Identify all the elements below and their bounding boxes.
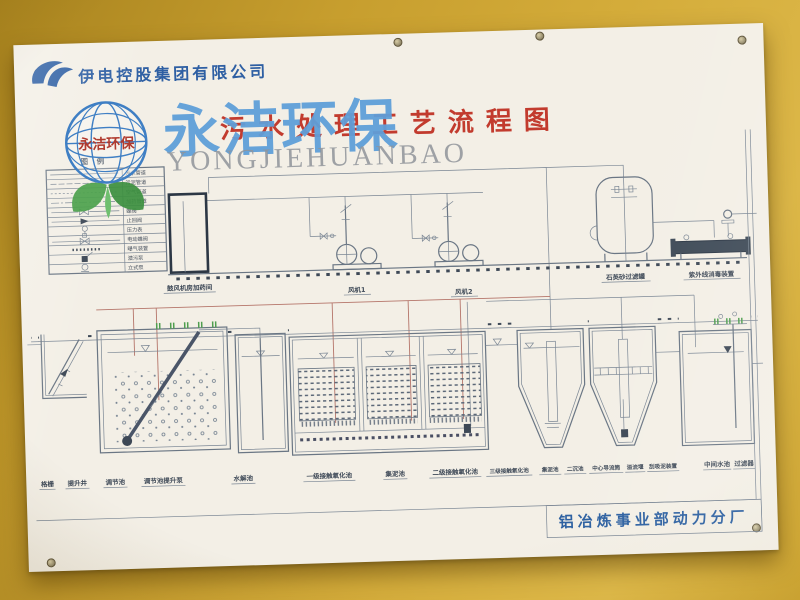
filter-tank-label: 石英砂过滤罐 xyxy=(605,272,646,282)
tank-label: 水解池 xyxy=(233,473,253,483)
tank-label: 二级接触氧化池 xyxy=(432,467,478,477)
screw-top-mid-1 xyxy=(393,38,402,47)
oxidation-tank-pump xyxy=(464,424,471,433)
legend-label: 蝶阀 xyxy=(126,207,137,215)
tank-label: 刮吸泥装置 xyxy=(649,462,678,471)
screw-top-mid-2 xyxy=(535,31,544,40)
legend: 图 例 污水管道 污泥管道 空气管道 加药管道 蝶阀 止回阀 xyxy=(46,154,167,274)
tank-label: 溢流堰 xyxy=(627,463,644,472)
legend-symbol-check-valve xyxy=(52,217,120,225)
pipe-to-clarifier xyxy=(485,344,517,345)
clarifier-1 xyxy=(517,328,586,448)
uv-unit-label: 紫外线消毒装置 xyxy=(689,269,735,279)
legend-symbol-dashed-line xyxy=(50,182,118,184)
tank-label: 集泥池 xyxy=(384,469,405,479)
legend-label: 压力表 xyxy=(127,225,144,233)
tank-labels: 格栅 提升井 调节池 调节池提升泵 水解池 一级接触氧化池 集泥池 二级接触氧化… xyxy=(39,458,755,489)
legend-label: 止回阀 xyxy=(126,216,142,224)
tank-label: 中心导流筒 xyxy=(592,463,621,472)
uv-disinfection-unit: 紫外线消毒装置 xyxy=(653,219,752,280)
company-name: 伊电控股集团有限公司 xyxy=(78,58,269,88)
tank-label: 中间水池 xyxy=(704,459,731,469)
legend-label: 立式泵 xyxy=(128,263,144,271)
tank-label: 过滤器 xyxy=(734,458,754,468)
legend-label: 潜污泵 xyxy=(128,254,144,262)
legend-title: 图 例 xyxy=(80,156,107,167)
ground-lower xyxy=(31,315,758,342)
tank-label: 三级接触氧化池 xyxy=(489,466,529,475)
legend-label: 电动蝶阀 xyxy=(127,235,148,244)
tank-label: 集泥池 xyxy=(541,465,559,474)
pipework-top xyxy=(204,165,628,339)
small-pump-right xyxy=(722,209,758,236)
legend-symbol-vertical-pump xyxy=(81,264,89,272)
legend-symbol-dotted-line xyxy=(51,192,119,194)
tank-label: 调节池 xyxy=(105,477,125,487)
blower-2: 风机2 xyxy=(411,192,484,298)
contact-oxidation-tanks xyxy=(289,331,488,455)
hydrolysis-tank xyxy=(235,333,288,452)
blower-room-label: 鼓风机房加药间 xyxy=(167,282,213,292)
company-logo-icon xyxy=(28,55,77,90)
screw-top-right xyxy=(737,35,746,44)
blower-1: 风机1 xyxy=(309,195,382,296)
legend-symbol-butterfly-valve xyxy=(51,208,119,216)
tank-label: 格栅 xyxy=(41,479,55,488)
tank-label: 一级接触氧化池 xyxy=(306,470,352,480)
plant-name: 铝冶炼事业部动力分厂 xyxy=(558,508,748,532)
legend-symbol-dash-dot-line xyxy=(51,201,119,203)
legend-symbol-aerator xyxy=(72,249,100,250)
legend-label: 污泥管道 xyxy=(125,178,146,187)
bar-screen-channel xyxy=(27,333,87,399)
legend-label: 加药管道 xyxy=(126,197,147,206)
legend-label: 污水管道 xyxy=(125,168,146,177)
tank-label: 提升井 xyxy=(67,478,87,488)
tank-label: 调节池提升泵 xyxy=(144,475,184,485)
legend-symbol-submersible-pump xyxy=(82,252,93,262)
process-flow-diagram: 图 例 污水管道 污泥管道 空气管道 加药管道 蝶阀 止回阀 xyxy=(21,127,768,561)
legend-label: 空气管道 xyxy=(126,187,147,196)
legend-symbol-solid-line xyxy=(50,173,118,175)
clarifier-2 xyxy=(589,326,682,447)
fan1-label: 风机1 xyxy=(348,285,366,295)
process-flow-poster: 伊电控股集团有限公司 污水处理工艺流程图 图 例 xyxy=(13,23,778,572)
tank-label: 二沉池 xyxy=(567,465,584,474)
legend-label: 曝气装置 xyxy=(127,244,148,253)
fan2-label: 风机2 xyxy=(455,287,473,297)
